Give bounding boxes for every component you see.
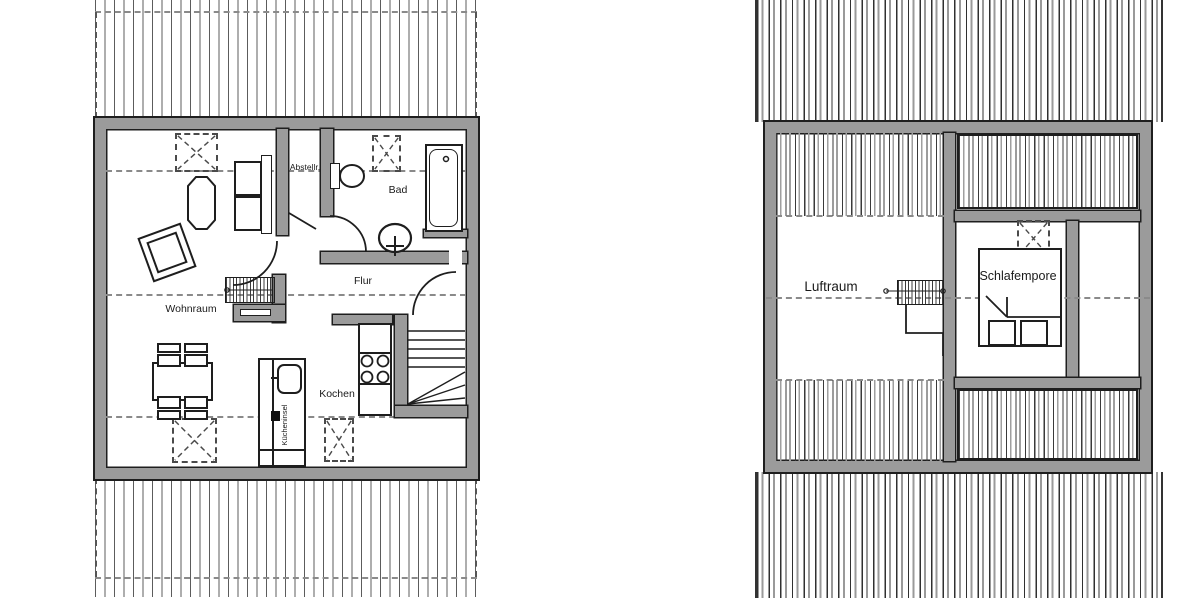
roof-band-bottom-left-plan — [95, 478, 477, 597]
sloped-roof-area — [776, 380, 944, 461]
roofline-dashed — [776, 379, 944, 381]
roof-edge-dashed-line — [475, 12, 477, 118]
wall-segment — [277, 129, 288, 235]
roofline-dashed-mid — [766, 297, 1150, 299]
wall-segment — [395, 406, 467, 417]
sloped-roof-compartment — [957, 389, 1138, 460]
chair — [157, 343, 181, 353]
roof-band-top-left-plan — [95, 0, 477, 118]
sofa-back — [261, 155, 272, 234]
roof-band-bottom-right-plan — [755, 472, 1163, 598]
armchair-seat — [146, 232, 187, 274]
roof-edge-dashed-line — [95, 478, 97, 577]
roof-edge-dashed-line — [95, 11, 477, 13]
room-label-wohnraum: Wohnraum — [158, 303, 224, 315]
roof-edge-dashed-line — [475, 478, 477, 577]
bed-pillow — [1020, 320, 1048, 346]
wall-niche — [240, 309, 271, 316]
roofline-dashed-mid — [106, 294, 466, 296]
stove — [358, 352, 392, 385]
skylight-icon — [172, 418, 217, 463]
wall-segment — [395, 315, 407, 417]
door-opening — [449, 250, 462, 265]
chair — [184, 343, 208, 353]
skylight-icon — [324, 418, 354, 462]
room-label-kochen: Kochen — [316, 388, 358, 400]
sloped-roof-compartment — [957, 134, 1138, 209]
room-label-schlafempore: Schlafempore — [962, 269, 1074, 283]
wall-segment — [1067, 221, 1078, 378]
room-label-bad: Bad — [384, 184, 412, 196]
room-label-luftraum: Luftraum — [795, 279, 867, 294]
room-label-abstellraum: Abstellr. — [288, 162, 322, 172]
wall-segment — [321, 252, 467, 263]
bed-pillow — [988, 320, 1016, 346]
sloped-roof-area — [776, 133, 944, 216]
floor-plan-sheet: Kücheninsel Wohnraum Abstellr. Bad Flur … — [0, 0, 1200, 600]
wall-segment — [955, 378, 1140, 388]
roofline-dashed — [776, 215, 944, 217]
skylight-icon — [372, 135, 401, 172]
chair — [184, 410, 208, 420]
chair — [184, 396, 208, 409]
chair — [157, 354, 181, 367]
roof-band-top-right-plan — [755, 0, 1163, 122]
skylight-icon — [175, 133, 218, 172]
loft-ladder-stair — [897, 280, 944, 305]
chair — [157, 396, 181, 409]
bathtub-inner — [429, 149, 458, 227]
roof-edge-dashed-line — [95, 12, 97, 118]
kitchen-island-label: Kücheninsel — [280, 390, 292, 460]
sofa-cushion — [234, 196, 262, 231]
loft-ladder-stair — [225, 277, 275, 303]
toilet-tank — [330, 163, 340, 189]
chair — [184, 354, 208, 367]
room-label-flur: Flur — [349, 275, 377, 287]
sofa-cushion — [234, 161, 262, 196]
island-fitting — [271, 411, 280, 421]
chair — [157, 410, 181, 420]
roof-edge-dashed-line — [95, 577, 477, 579]
